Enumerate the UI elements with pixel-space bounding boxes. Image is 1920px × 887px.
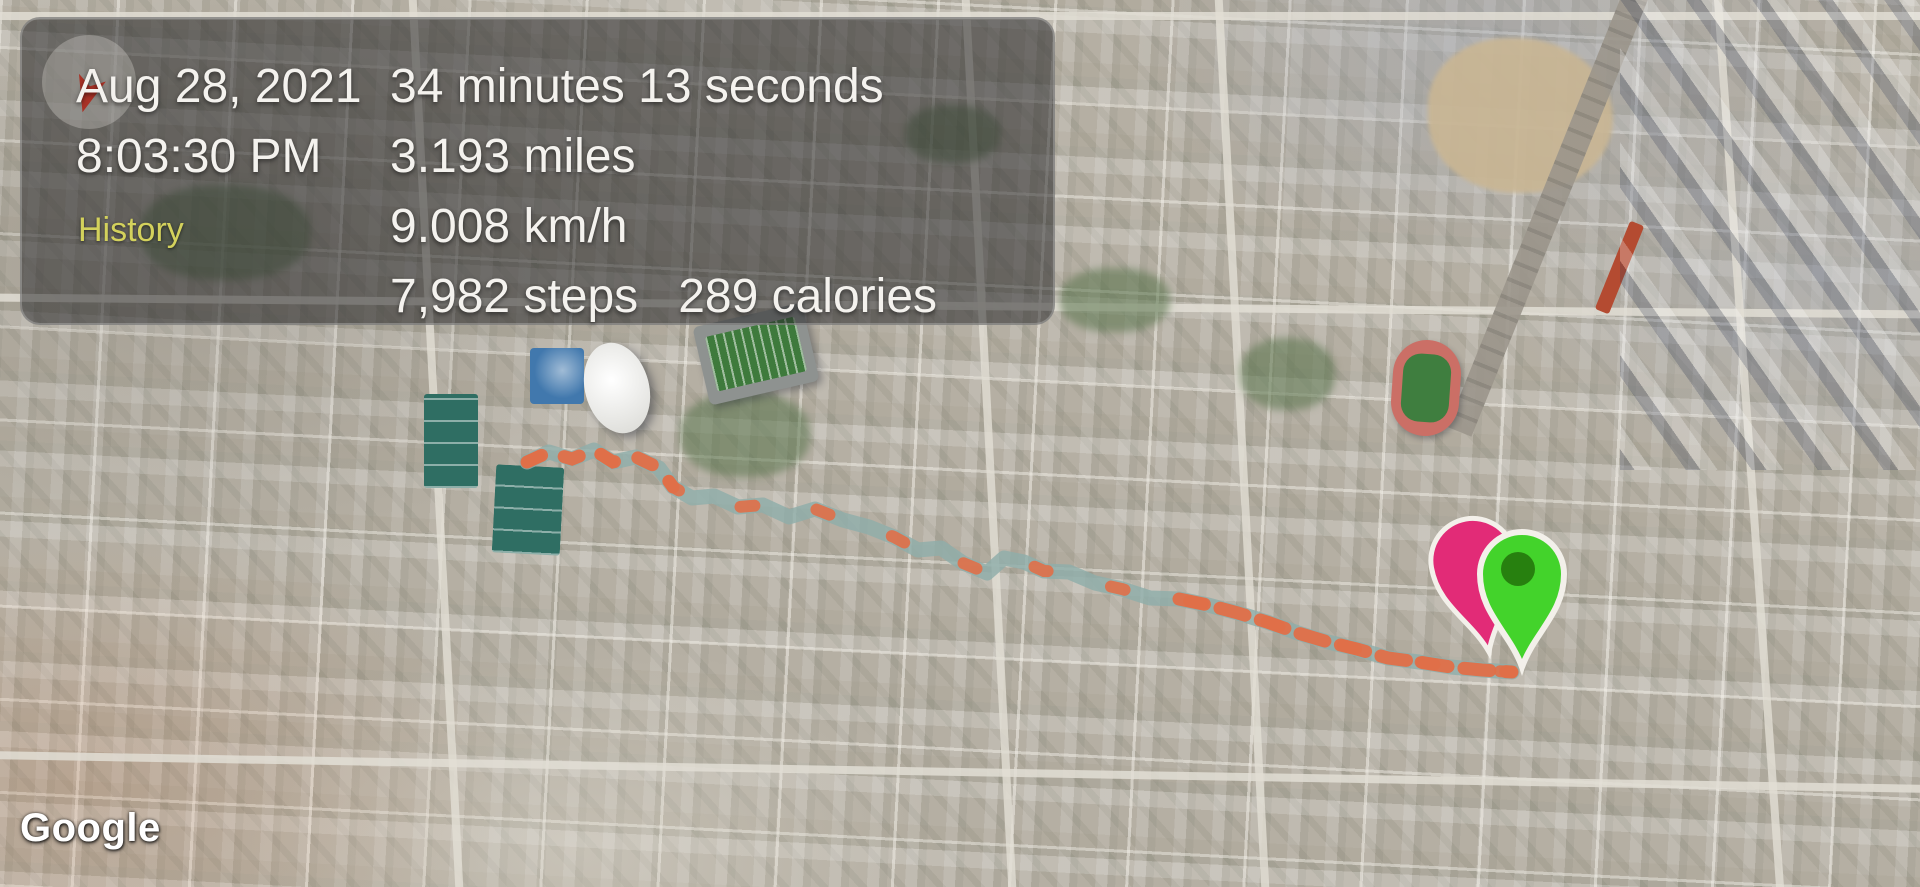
history-link[interactable]: History	[78, 211, 184, 250]
activity-date: Aug 28, 2021	[76, 59, 362, 114]
activity-steps-calories: 7,982 steps289 calories	[390, 269, 937, 324]
activity-distance: 3.193 miles	[390, 129, 635, 184]
activity-info-panel: Aug 28, 2021 8:03:30 PM History 34 minut…	[20, 17, 1055, 325]
activity-calories: 289 calories	[678, 270, 937, 323]
google-logo: Google	[20, 806, 161, 851]
activity-start-time: 8:03:30 PM	[76, 129, 321, 184]
activity-duration: 34 minutes 13 seconds	[390, 59, 884, 114]
activity-map-screen: Aug 28, 2021 8:03:30 PM History 34 minut…	[0, 0, 1920, 887]
activity-steps: 7,982 steps	[390, 270, 638, 323]
activity-speed: 9.008 km/h	[390, 199, 627, 254]
